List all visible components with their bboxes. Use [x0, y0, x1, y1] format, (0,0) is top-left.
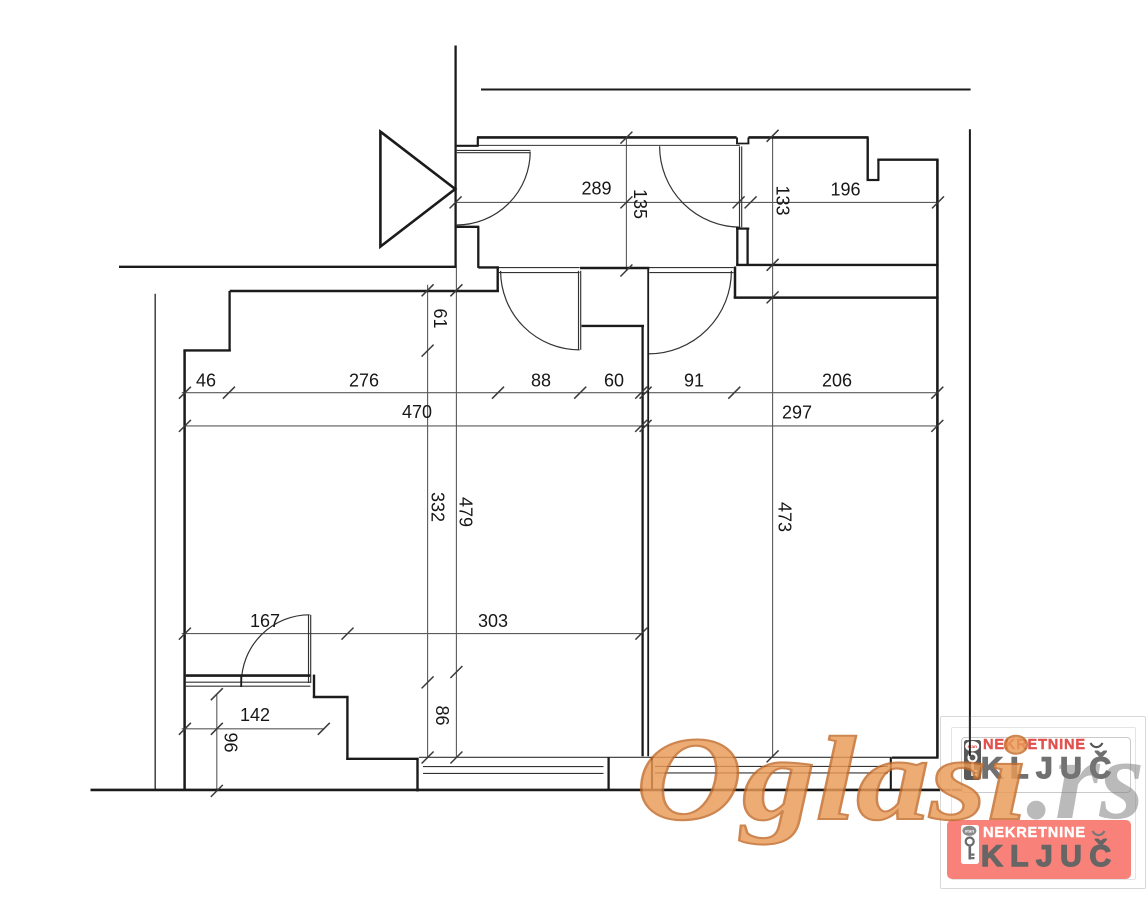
svg-text:.rs: .rs — [1026, 716, 1144, 843]
svg-text:Oglasi: Oglasi — [636, 713, 1028, 845]
